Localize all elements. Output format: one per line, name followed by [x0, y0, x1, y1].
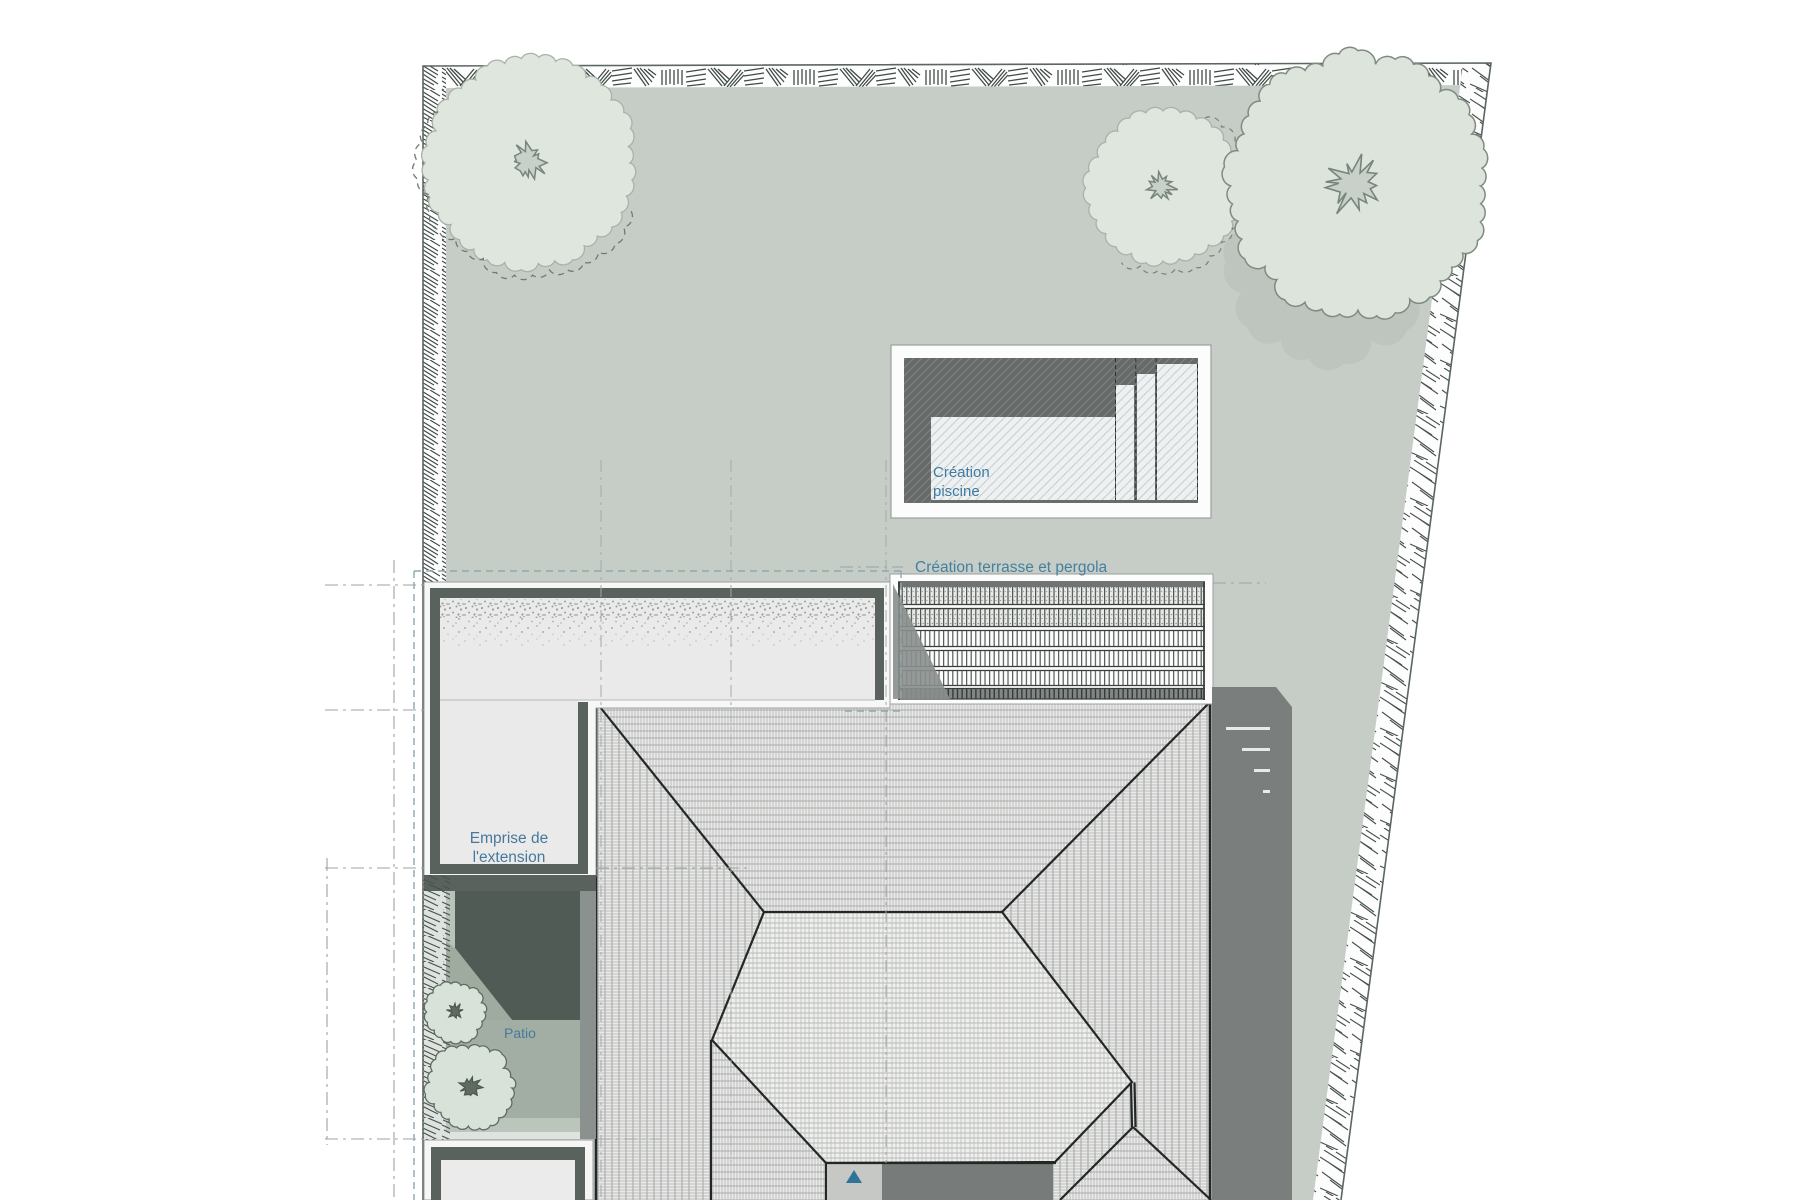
svg-text:Création terrasse et pergola: Création terrasse et pergola: [915, 559, 1108, 576]
svg-text:Emprise de: Emprise de: [470, 830, 548, 847]
svg-text:Création: Création: [933, 464, 990, 481]
svg-text:l'extension: l'extension: [473, 849, 546, 866]
svg-text:Patio: Patio: [504, 1025, 536, 1041]
svg-text:piscine: piscine: [933, 483, 980, 500]
